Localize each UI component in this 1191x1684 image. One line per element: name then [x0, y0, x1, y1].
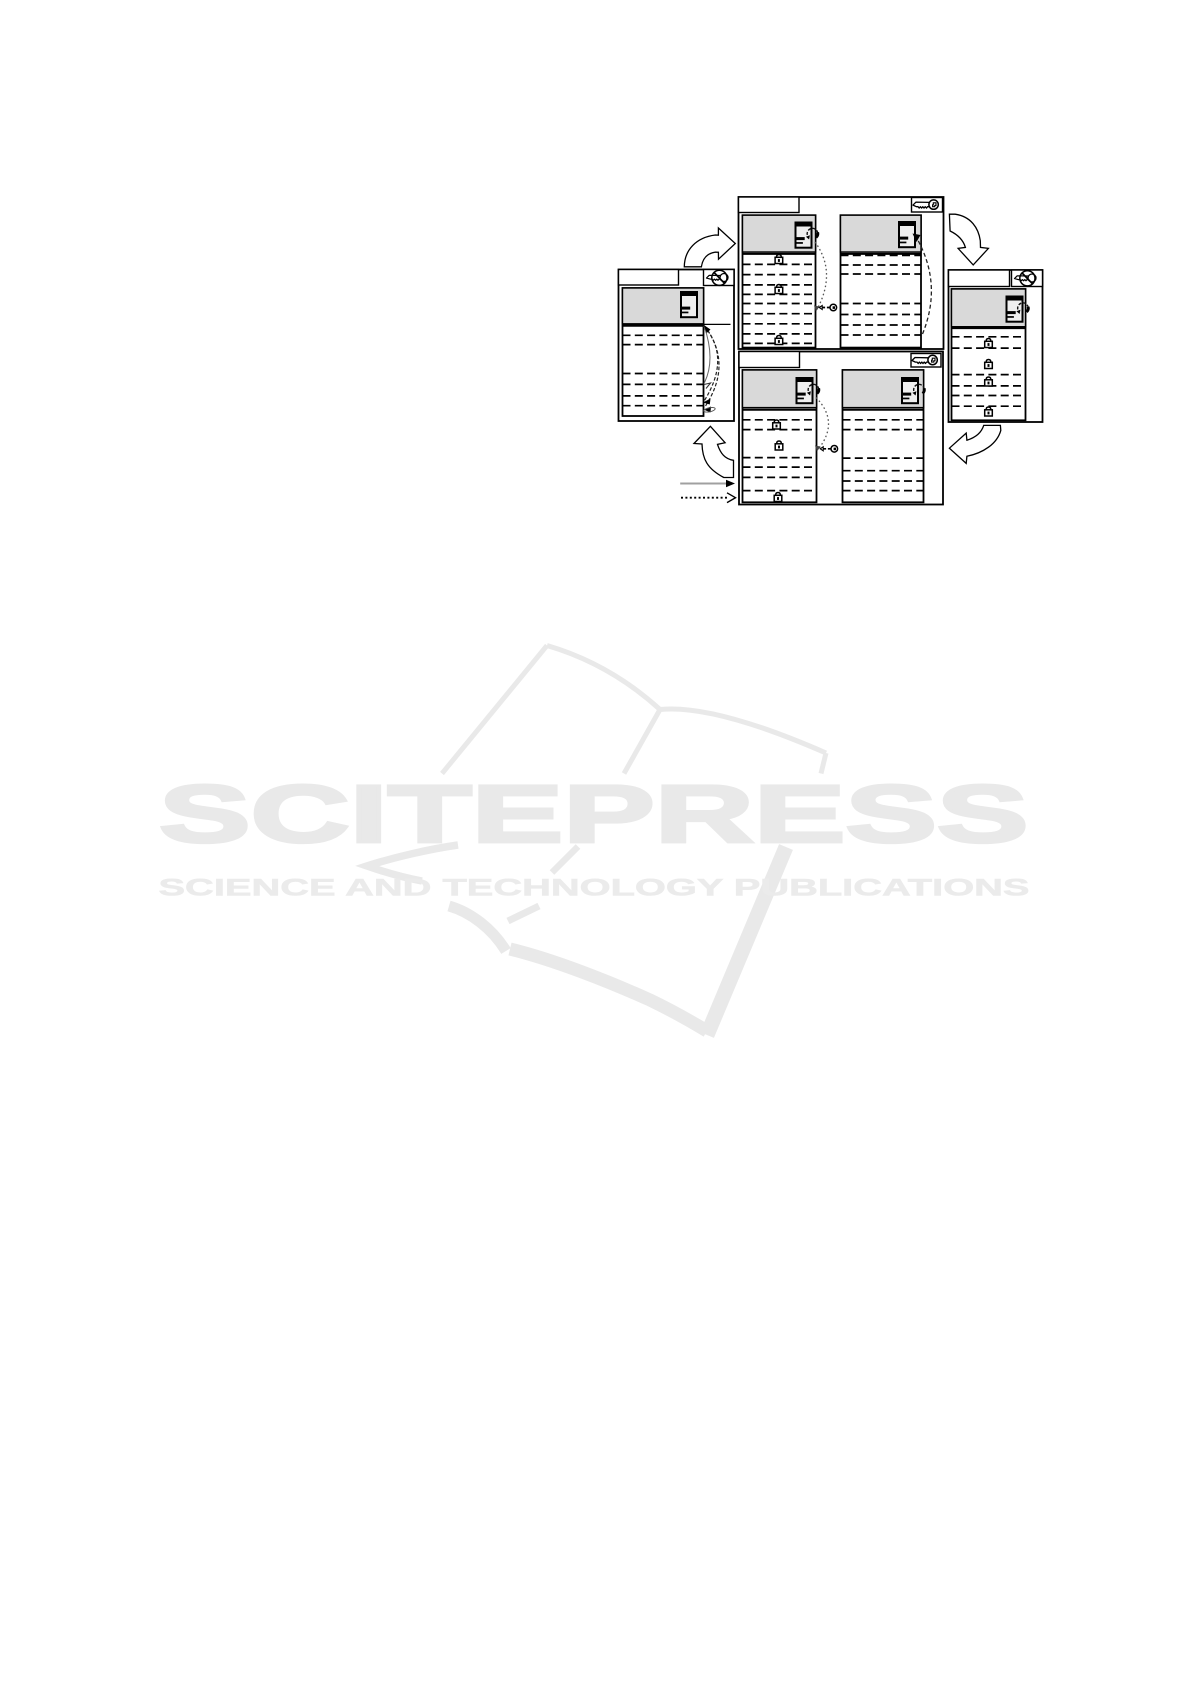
svg-text:SCITEPRESS: SCITEPRESS: [159, 769, 1029, 860]
svg-text:SCIENCE AND TECHNOLOGY PUBLICA: SCIENCE AND TECHNOLOGY PUBLICATIONS: [159, 875, 1030, 902]
